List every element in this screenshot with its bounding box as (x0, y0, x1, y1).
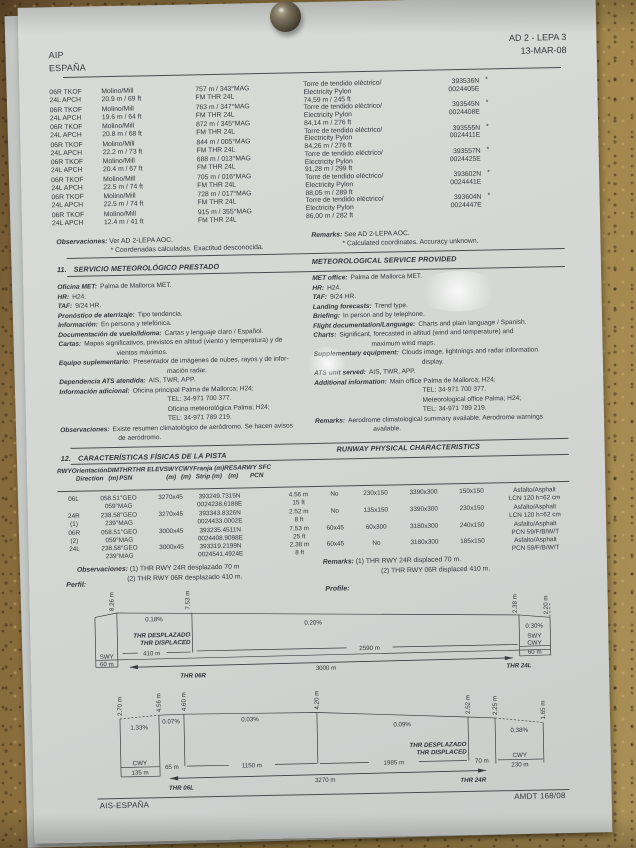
column-header: RWY SFC PCN (242, 464, 272, 481)
slope-3: 0.30% (525, 622, 543, 629)
obstacle-coordinates: 393536N 0024405E (421, 78, 479, 95)
cell-cwy: 135x150 (350, 506, 402, 524)
slope-3: 0.03% (241, 716, 259, 723)
field-value: Palma de Mallorca MET. (351, 273, 423, 281)
column-header: Orientación Direction (72, 467, 108, 484)
obstacle-type: Molino/Mill 20.8 m / 68 ft (102, 121, 196, 140)
column-header: THR PSN (119, 467, 132, 483)
field-value: Oficina principal Palma de Mallorca; H24… (133, 385, 254, 394)
field-label: Charts: (313, 332, 336, 339)
field-value: TEL: 34-971 700 377. (422, 386, 486, 394)
cell-surface: Asfalto/AsphaltPCN 59/F/B/W/T (498, 536, 572, 554)
elev-2-52: 2.52 m (465, 695, 472, 714)
field-value: Oficina meteorológica Palma; H24; (168, 403, 270, 412)
obstacle-remarks: Remarks: See AD 2-LEPA AOC. * Calculated… (311, 228, 478, 249)
field-label: Equipo suplementario: (59, 359, 131, 367)
field-value: vientos máximos. (117, 348, 168, 356)
right-cwy: CWY (527, 639, 542, 646)
obstacle-list-left: 06R TKOF 24L APCH Molino/Mill 20.9 m / 6… (49, 84, 310, 229)
obstacle-rwy: 06R TKOF 24L APCH (52, 211, 104, 230)
obstacle-type: Molino/Mill 20.9 m / 69 ft (101, 86, 195, 105)
cwy-left-length: 135 m (131, 769, 148, 776)
field-value: 9/24 HR. (330, 293, 356, 301)
field-label: Información adicional: (59, 387, 129, 395)
obstacle-position: 763 m / 347°MAG FM THR 24L (196, 102, 308, 122)
section-11-title-en: METEOROLOGICAL SERVICE PROVIDED (312, 254, 457, 266)
column-header: RESA (m) (224, 464, 242, 480)
segment-70: 70 m (475, 758, 489, 765)
cell-cwy: 60x300 (350, 523, 402, 541)
observaciones-label: Observaciones: (56, 238, 107, 246)
cell-dim: 3270x45 (148, 510, 194, 528)
table-remarks: Remarks: (1) THR RWY 24R displaced 70 m.… (323, 555, 491, 577)
thr-06l-label: THR 06L (169, 785, 194, 793)
cell-rwy: 24R(1) (58, 512, 90, 529)
cell-direction: 238.58°GEO239°MAG (90, 545, 148, 563)
field-label: Información: (58, 321, 98, 329)
obstacle-coordinates: 393604N 0024447E (424, 194, 482, 211)
push-pin (270, 1, 301, 32)
section-11-title-es: 11.SERVICIO METEOROLÓGICO PRESTADO (57, 262, 219, 274)
cell-surface: Asfalto/AsphaltPCN 59/F/B/W/T (498, 519, 572, 537)
cell-thr-psn: 393319.2199N0024541.4924E (194, 543, 246, 561)
obstacle-coordinates: 393602N 0024441E (423, 171, 481, 188)
field-label: TAF: (312, 294, 327, 301)
runway-profile-diagram-06r-24l: SWY 60 m 410 m 2590 m 0.18% 0.20% 0.30% … (29, 580, 607, 696)
field-value: available. (373, 425, 401, 433)
field-value: Charts and plain language / Spanish. (418, 318, 526, 327)
column-header: Franja (m) Strip (m) (193, 465, 224, 482)
elev-2-25: 2.25 m (492, 696, 499, 715)
thr-displaced: THR DISPLACED (140, 639, 191, 647)
cell-strip: 3180x300 (402, 522, 446, 540)
table-observaciones: Observaciones: (1) THR RWY 24R desplazad… (77, 562, 243, 584)
obstacle-type: Molino/Mill 20.4 m / 67 ft (103, 156, 197, 175)
cwy-left: CWY (133, 760, 148, 767)
field-value: de aeródromo. (118, 434, 161, 442)
thr-24l-label: THR 24L (506, 662, 531, 670)
field-label: Briefing: (313, 312, 340, 320)
cell-dim: 3000x45 (148, 527, 194, 545)
field-value: Tipo tendencia. (138, 310, 183, 318)
slope-2: 0.07% (162, 718, 180, 725)
obstacle-position: 915 m / 355°MAG FM THR 24L (198, 207, 310, 227)
asterisk-marker: * (487, 193, 490, 201)
segment-65: 65 m (165, 764, 179, 771)
obstacle-type: Molino/Mill 19.6 m / 64 ft (102, 104, 196, 123)
field-value: AIS, TWR, APP. (149, 376, 196, 384)
field-value: Palma de Mallorca MET. (100, 282, 172, 290)
cell-resa: 230x150 (446, 504, 498, 522)
thr-displaced: THR DISPLACED (416, 749, 467, 757)
obstacle-rwy: 06R TKOF 24L APCH (51, 158, 103, 177)
field-value: TEL: 34-971 700 377. (167, 395, 231, 403)
cell-dim: 3270x45 (147, 493, 193, 511)
field-value: mación radar. (167, 367, 207, 375)
footer-amendment: AMDT 168/08 (514, 791, 566, 801)
thr-06r-label: THR 06R (180, 672, 206, 680)
obstacle-coordinates: 393555N 0024411E (422, 124, 480, 141)
field-value: AIS, TWR, APP. (369, 368, 416, 376)
field-label: HR: (312, 284, 324, 291)
asterisk-marker: * (486, 123, 489, 131)
obstacle-rwy: 06R TKOF 24L APCH (50, 106, 102, 125)
swy-length: 60 m (100, 661, 114, 668)
field-label: Dependencia ATS atendida: (59, 377, 146, 386)
cell-strip: 3180x300 (402, 539, 446, 557)
cell-thr-elev: 7.53 m25 ft (262, 524, 336, 542)
cell-direction: 058.51°GEO059°MAG (90, 528, 148, 546)
field-value: TEL: 34-971 789 219. (423, 405, 487, 413)
obstacle-coordinates: 393545N 0024408E (422, 101, 480, 118)
obstacle-row: 06R TKOF 24L APCH Molino/Mill 12.4 m / 4… (52, 207, 310, 230)
cell-rwy: 06R(2) (58, 529, 90, 546)
field-value: Clouds image, lightnings and radar infor… (402, 347, 538, 357)
cell-thr-psn: 393343.8326N0024433.0002E (194, 509, 246, 527)
document-reference: AD 2 - LEPA 3 (509, 31, 567, 45)
elev-4-60: 4.60 m (180, 692, 187, 711)
cell-direction: 238.58°GEO239°MAG (90, 511, 148, 529)
segment-2590: 2590 m (359, 645, 380, 652)
cell-thr-elev: 4.56 m15 ft (261, 491, 335, 509)
field-label: Pronóstico de aterrizaje: (58, 311, 135, 320)
column-header: CWY (m) (178, 465, 193, 481)
remarks-label: Remarks: (311, 231, 342, 239)
slope-5: 0.38% (510, 727, 528, 734)
segment-1150: 1150 m (242, 762, 262, 769)
thr-24r-label: THR 24R (460, 777, 486, 785)
elev-4-20: 4.20 m (313, 691, 320, 710)
cell-resa: 185x150 (446, 538, 498, 556)
obstacle-type: Molino/Mill 22.5 m / 74 ft (103, 191, 197, 210)
page-header-left: AIP ESPAÑA (49, 49, 87, 76)
field-label: Remarks: (315, 417, 345, 425)
field-value: En persona y telefónica. (101, 320, 172, 328)
obstacle-type: Molino/Mill 22.2 m / 73 ft (102, 139, 196, 158)
slope-1: 1.33% (130, 724, 148, 731)
column-header: THR ELEV (132, 466, 164, 483)
segment-410: 410 m (143, 650, 160, 657)
field-label: Additional information: (314, 378, 387, 386)
field-label: Documentación de vuelo/Idioma: (58, 330, 161, 339)
elev-2-70: 2.70 m (117, 697, 124, 716)
field-value: 9/24 HR. (75, 302, 101, 310)
right-60m: 60 m (528, 648, 542, 655)
cell-surface: Asfalto/AsphaltLCN 120 h=62 cm (497, 486, 571, 504)
obstacle-rwy: 06R TKOF 24L APCH (50, 123, 102, 142)
section-12-title-en: RUNWAY PHYSICAL CHARACTERISTICS (336, 442, 479, 454)
cell-resa: 150x150 (445, 487, 497, 505)
cell-cwy: 230x150 (349, 489, 401, 507)
segment-1985: 1985 m (384, 759, 405, 766)
elev-2-20: 2.20 m (543, 595, 550, 614)
field-label: TAF: (58, 303, 73, 310)
swy-label: SWY (100, 654, 114, 661)
asterisk-marker: * (486, 100, 489, 108)
runway-table-body: 06L 058.51°GEO059°MAG 3270x45 393249.731… (57, 486, 572, 563)
cell-strip: 3390x300 (402, 505, 446, 523)
cwy-right: CWY (512, 752, 527, 759)
obstacle-position: 757 m / 343°MAG FM THR 24L (195, 84, 307, 104)
asterisk-marker: * (487, 170, 490, 178)
cell-thr-psn: 393249.7315N0024238.6188E (193, 492, 245, 510)
profile-label-es: Perfil: (66, 582, 86, 589)
column-header: DIM (m) (107, 467, 119, 483)
obstacle-rwy: 06R TKOF 24L APCH (50, 141, 102, 160)
cell-rwy: 06L (57, 496, 89, 513)
cell-thr-elev: 2.38 m8 ft (262, 541, 336, 559)
aip-document-page: AD 2 - LEPA 3 13-MAR-08 AIP ESPAÑA 06R T… (18, 0, 613, 844)
obstacle-type: Molino/Mill 22.5 m / 74 ft (103, 174, 197, 193)
field-label: Supplementary equipment: (314, 349, 399, 358)
field-value: display. (422, 358, 444, 365)
publication-title: AIP (49, 49, 86, 63)
obstacle-position: 688 m / 013°MAG FM THR 24L (197, 154, 309, 174)
cwy-right-length: 230 m (511, 761, 528, 768)
elev-7-53: 7.53 m (184, 591, 191, 610)
obstacle-coordinates: 393557N 0024425E (423, 148, 481, 165)
field-value: maximum wind maps. (371, 339, 435, 347)
met-column-spanish: Oficina MET:Palma de Mallorca MET. HR:H2… (57, 279, 312, 446)
cell-thr-elev: 2.52 m8 ft (262, 507, 336, 525)
met-column-english: MET office:Palma de Mallorca MET. HR:H24… (312, 270, 573, 437)
total-length: 3270 m (315, 777, 336, 784)
field-label: Landing forecasts: (313, 302, 372, 310)
obstacle-position: 844 m / 005°MAG FM THR 24L (196, 137, 308, 157)
obstacle-rwy: 06R TKOF 24L APCH (51, 176, 103, 195)
document-date: 13-MAR-08 (509, 43, 567, 57)
cell-rwy: 24L (58, 546, 90, 563)
field-value: H24. (72, 293, 86, 300)
cell-dim: 3000x45 (148, 544, 194, 562)
field-value: TEL: 34-971 789 219. (168, 414, 232, 422)
cell-strip: 3390x300 (401, 488, 445, 506)
column-header: RWY (57, 468, 72, 484)
asterisk-marker: * (487, 146, 490, 154)
slope-2: 0.20% (304, 619, 322, 626)
cell-resa: 240x150 (446, 521, 498, 539)
publication-country: ESPAÑA (49, 62, 86, 76)
asterisk-marker: * (485, 76, 488, 84)
total-length: 3000 m (316, 665, 337, 672)
slope-4: 0.09% (393, 721, 411, 728)
obstacle-position: 728 m / 017°MAG FM THR 24L (197, 189, 309, 209)
field-value: Cartas y lenguaje claro / Español. (164, 328, 263, 337)
elev-4-56: 4.56 m (155, 693, 162, 712)
field-value: H24. (327, 284, 341, 291)
obstacle-observaciones: Observaciones: Ver AD 2-LEPA AOC. * Coor… (56, 234, 263, 256)
column-header: SWY (m) (164, 466, 179, 482)
cell-direction: 058.51°GEO059°MAG (89, 494, 147, 512)
footer-publisher: AIS-ESPAÑA (100, 800, 150, 810)
slope-1: 0.18% (145, 616, 163, 623)
cell-cwy: No (350, 540, 402, 558)
field-label: Observaciones: (60, 426, 110, 434)
field-label: Cartas: (58, 341, 81, 348)
runway-table-header: RWY Orientación Direction DIM (m) THR PS… (57, 464, 271, 484)
field-label: HR: (57, 293, 69, 300)
field-label: ATS unit served: (314, 369, 366, 377)
obstacle-position: 872 m / 345°MAG FM THR 24L (196, 119, 308, 139)
field-value: In person and by telephone. (343, 311, 425, 320)
field-value: Trend type. (375, 302, 408, 310)
page-header-right: AD 2 - LEPA 3 13-MAR-08 (509, 31, 567, 57)
field-value: Meteorological office Palma; H24; (423, 394, 522, 403)
field-label: Oficina MET: (57, 283, 97, 291)
field-label: Flight documentation/Language: (313, 320, 415, 329)
obstacle-type: Molino/Mill 12.4 m / 41 ft (104, 209, 198, 228)
elev-8-26: 8.26 m (108, 592, 115, 611)
field-value: Main office Palma de Mallorca; H24; (390, 376, 496, 385)
obstacle-rwy: 06R TKOF 24L APCH (51, 193, 103, 212)
elev-1-65: 1.65 m (540, 700, 547, 719)
cork-board: { "header": { "aip": "AIP", "country": "… (0, 0, 636, 848)
field-label: MET office: (312, 274, 348, 282)
obstacle-rwy: 06R TKOF 24L APCH (49, 88, 101, 107)
cell-thr-psn: 393235.4511N0024408.9098E (194, 526, 246, 544)
cell-surface: Asfalto/AsphaltLCN 120 h=62 cm (498, 503, 572, 521)
obstacle-position: 705 m / 016°MAG FM THR 24L (197, 172, 309, 192)
obstacle-row: Torre de tendido eléctrico/ Electricity … (306, 192, 570, 221)
elev-2-38: 2.38 m (512, 594, 519, 613)
obstacle-list-right: Torre de tendido eléctrico/ Electricity … (303, 76, 570, 221)
